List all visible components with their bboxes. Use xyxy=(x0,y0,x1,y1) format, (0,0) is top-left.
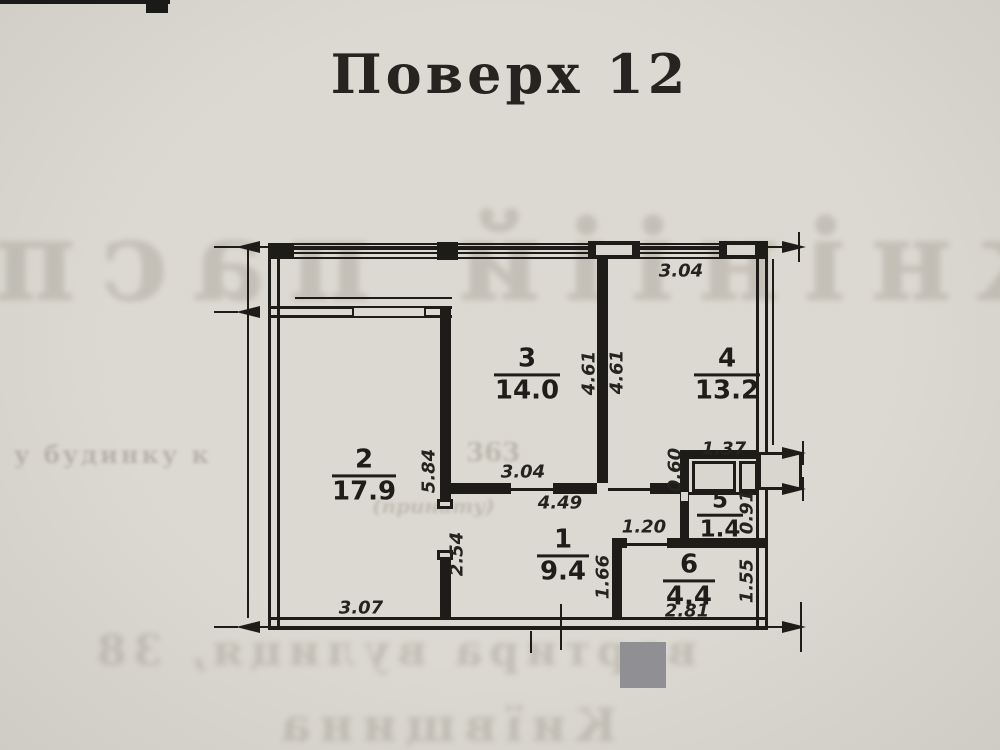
dim-wc-height: 0.91 xyxy=(737,490,758,534)
room2-window-line2 xyxy=(354,316,424,318)
dim-hall-left-height: 2.54 xyxy=(447,532,468,576)
bleedthrough-bottom-line2: Київщина xyxy=(272,698,617,750)
loggia-inner-line xyxy=(295,297,452,299)
scan-edge-blob xyxy=(146,0,168,13)
room-label-1: 1 9.4 xyxy=(537,526,589,587)
dim-room6-left-height: 1.66 xyxy=(593,555,614,599)
dim-tail-bottom-left xyxy=(214,626,238,628)
wall-room2-right-upper xyxy=(440,306,451,500)
vent-shaft-small xyxy=(739,461,758,492)
room-3-number: 3 xyxy=(494,345,560,376)
dim-tick-bottom-mid1 xyxy=(530,631,532,653)
room-label-3: 3 14.0 xyxy=(494,345,560,406)
room2-window-line1 xyxy=(354,306,424,308)
dim-line-bottom xyxy=(248,626,798,628)
room2-window-jamb2 xyxy=(424,306,426,318)
wall-room3-bottom-left xyxy=(451,483,511,494)
dim-room2-height: 5.84 xyxy=(419,449,440,493)
redaction-box xyxy=(620,642,666,688)
wall-exterior-right xyxy=(756,243,768,630)
room-label-4: 4 13.2 xyxy=(694,345,760,406)
dim-hall-width: 4.49 xyxy=(538,493,582,514)
room-2-number: 2 xyxy=(332,446,396,477)
room2-window-jamb1 xyxy=(352,306,354,318)
dim-top-width: 3.04 xyxy=(659,261,703,282)
dim-arrow-left-mid xyxy=(236,306,260,318)
dim-arrow-top-left xyxy=(236,241,260,253)
room-1-area: 9.4 xyxy=(537,558,589,588)
dim-tail-left-mid xyxy=(214,311,238,313)
bleedthrough-top-text: кнініій пасп xyxy=(0,196,1000,327)
page-title: Поверх 12 xyxy=(310,42,710,106)
room-3-area: 14.0 xyxy=(494,377,560,407)
dim-shaft-width: 1.37 xyxy=(702,439,746,460)
room-6-number: 6 xyxy=(663,551,715,582)
dim-tail-left-top xyxy=(214,246,238,248)
dim-room3-width: 3.04 xyxy=(501,462,545,483)
dim-shaft-height: 0.60 xyxy=(665,448,686,492)
dim-room6-width: 2.81 xyxy=(665,601,709,622)
door-threshold-room4 xyxy=(608,488,650,491)
dim-room6-right-height: 1.55 xyxy=(737,559,758,603)
entrance-dim-arrow-bottom xyxy=(782,483,806,495)
wall-exterior-left xyxy=(268,243,280,630)
wall-pier-mid1 xyxy=(437,242,458,260)
dim-line-top xyxy=(238,246,800,248)
room-4-number: 4 xyxy=(694,345,760,376)
door-threshold-room6 xyxy=(627,543,667,546)
room-1-number: 1 xyxy=(537,526,589,557)
entrance-dim-arrow-top xyxy=(782,447,806,459)
room-2-area: 17.9 xyxy=(332,478,396,508)
dim-arrow-bottom-right xyxy=(782,621,806,633)
door-jamb-room2-top xyxy=(437,499,453,509)
door-threshold-room3 xyxy=(511,488,553,491)
room-label-2: 2 17.9 xyxy=(332,446,396,507)
wall-room6-left xyxy=(612,538,622,618)
room-4-area: 13.2 xyxy=(694,377,760,407)
scanned-floorplan-page: кнініій пасп у будинку к 363 (принату) в… xyxy=(0,0,1000,750)
right-wall-face-line xyxy=(772,259,774,445)
dim-arrow-bottom-left xyxy=(236,621,260,633)
dim-room2-width: 3.07 xyxy=(339,598,383,619)
bleedthrough-bottom-line1: вартира вулиця, 38 xyxy=(90,626,697,675)
door-notch-room5 xyxy=(681,492,688,501)
wall-pier-mid2-core xyxy=(596,245,632,255)
dim-line-left xyxy=(247,247,249,618)
dim-room3-height: 4.61 xyxy=(579,351,600,395)
scan-edge-line xyxy=(0,0,170,4)
bleedthrough-mid-text: у будинку к xyxy=(14,440,212,469)
dim-room4-height: 4.61 xyxy=(607,350,628,394)
wall-pier-right-core xyxy=(727,245,755,255)
dim-tick-bottom-mid2 xyxy=(560,604,562,650)
dim-arrow-top-right xyxy=(782,241,806,253)
dim-hall6-width: 1.20 xyxy=(622,517,666,538)
wall-room2-top-left xyxy=(268,306,354,318)
